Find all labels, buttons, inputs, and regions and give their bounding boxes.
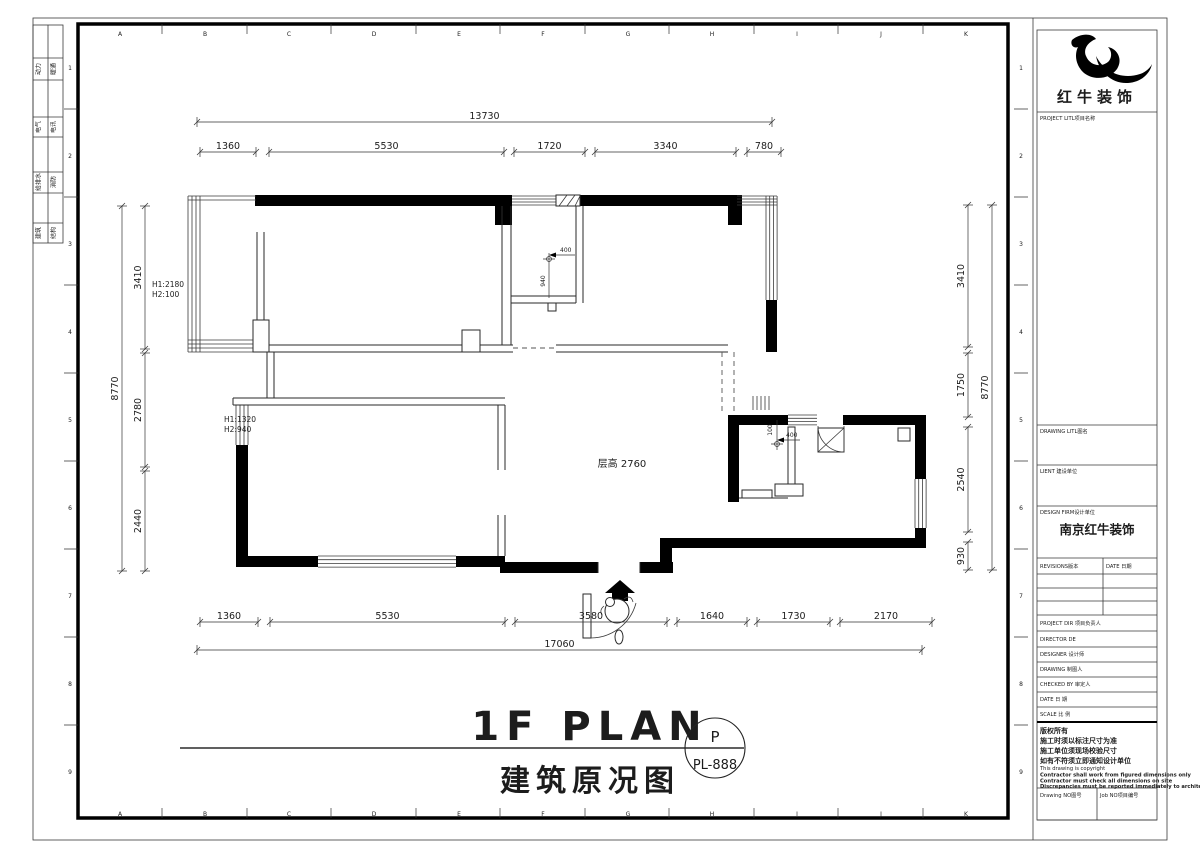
grid-number: 5 — [68, 417, 72, 424]
grid-number: 2 — [1019, 153, 1023, 160]
dim-label: 3580 — [579, 611, 603, 622]
wall-pier — [253, 320, 269, 352]
dim-label: 3340 — [653, 141, 677, 152]
dim-top-5: 780 — [744, 141, 784, 157]
interior-walls — [233, 206, 788, 573]
grid-number: 6 — [1019, 505, 1023, 512]
window-top-middle — [512, 196, 556, 205]
grid-letter: G — [626, 31, 631, 38]
copyright-line-en: This drawing is copyright — [1039, 766, 1105, 772]
grid-number: 7 — [68, 593, 72, 600]
date-col-label: DATE 日期 — [1106, 563, 1132, 570]
grid-letter: H — [710, 811, 715, 818]
dim-top-3: 1720 — [511, 141, 588, 157]
copyright-line: 施工时须以标注尺寸为准 — [1040, 736, 1117, 745]
grid-letter: C — [287, 811, 291, 818]
window1-h1-label: H1:2180 — [152, 280, 184, 289]
dim-right-1: 3410 — [956, 202, 973, 350]
dim-label: 1750 — [956, 373, 967, 397]
dim-top-overall: 13730 — [194, 111, 775, 127]
window2-h2-label: H2:940 — [224, 425, 251, 434]
director-label: DIRECTOR DE — [1040, 637, 1076, 643]
micro-dim-label: 400 — [786, 432, 798, 439]
grid-letter: F — [541, 811, 545, 818]
grid-numbers-right: 1 2 3 4 5 6 7 8 9 — [1014, 65, 1028, 776]
micro-dim-label: 400 — [560, 247, 572, 254]
dim-label: 1730 — [781, 611, 805, 622]
dim-label: 13730 — [469, 111, 499, 122]
stamp-label: 结构 — [50, 227, 58, 239]
bubble-number: PL-888 — [693, 758, 737, 773]
dim-right-2: 1750 — [956, 350, 973, 420]
grid-number: 1 — [68, 65, 72, 72]
grid-number: 4 — [68, 329, 72, 336]
title-cn: 建筑原况图 — [500, 764, 680, 799]
window-kitchen-top — [788, 415, 817, 425]
stamp-label: 消防 — [50, 176, 58, 188]
copyright-line: 如有不符须立即通知设计单位 — [1040, 756, 1131, 765]
micro-dim-label: 940 — [540, 275, 547, 287]
dim-left-overall: 8770 — [110, 203, 127, 574]
dim-label: 17060 — [544, 639, 574, 650]
grid-letter: J — [879, 811, 882, 818]
grid-letter: J — [879, 31, 882, 38]
kitchen-fixtures — [742, 426, 910, 498]
bubble-letter: P — [710, 728, 719, 746]
grid-letter: F — [541, 31, 545, 38]
removed-wall-dashed — [513, 348, 734, 415]
floor-plan-walls — [236, 195, 926, 573]
copyright-line: 版权所有 — [1040, 726, 1068, 735]
dim-left-2: 2780 — [133, 350, 150, 470]
drawing-by-label: DRAWING 制图人 — [1040, 665, 1082, 673]
grid-letter: D — [372, 811, 377, 818]
stamp-label: 动力 — [35, 63, 43, 75]
dim-label: 1360 — [216, 141, 240, 152]
grid-number: 8 — [68, 681, 72, 688]
dim-left-1: 3410 — [133, 203, 150, 352]
grid-number: 4 — [1019, 329, 1023, 336]
dim-label: 2170 — [874, 611, 898, 622]
window-right-upper — [766, 196, 777, 300]
grid-number: 8 — [1019, 681, 1023, 688]
stamp-label: 建筑 — [35, 227, 43, 239]
grid-number: 6 — [68, 505, 72, 512]
dim-label: 930 — [956, 547, 967, 565]
drawing-title: 1F PLAN 建筑原况图 P PL-888 — [180, 704, 745, 799]
window-hatched — [556, 195, 580, 206]
dim-top-1: 1360 — [197, 141, 259, 157]
grid-letter: K — [964, 31, 969, 38]
wall-pier — [462, 330, 480, 352]
stamp-label: 暖通 — [50, 63, 58, 75]
dim-bottom-5: 1730 — [754, 611, 833, 627]
signature-strip: 动力 暖通 电气 电讯 给排水 消防 建筑 结构 — [33, 25, 63, 243]
grid-letter: A — [118, 31, 123, 38]
grid-number: 9 — [68, 769, 72, 776]
stamp-label: 电讯 — [50, 121, 58, 133]
window-balcony-left — [188, 196, 200, 352]
grid-letter: B — [203, 31, 207, 38]
stamp-label: 电气 — [35, 121, 43, 133]
grid-letter: D — [372, 31, 377, 38]
grid-number: 2 — [68, 153, 72, 160]
grid-number: 3 — [68, 241, 72, 248]
dim-top-2: 5530 — [266, 141, 507, 157]
room-height-label: 层高 2760 — [598, 457, 647, 470]
grid-letter: B — [203, 811, 207, 818]
dim-right-overall: 8770 — [980, 202, 997, 573]
grid-letter: I — [796, 811, 798, 818]
dim-label: 780 — [755, 141, 773, 152]
dim-bottom-1: 1360 — [197, 611, 261, 627]
grid-letter: E — [457, 811, 461, 818]
grid-letter: H — [710, 31, 715, 38]
title-en: 1F PLAN — [471, 704, 708, 750]
grid-letter: G — [626, 811, 631, 818]
grid-letter: I — [796, 31, 798, 38]
drawing-title-label: DRAWING LITL图名 — [1040, 427, 1088, 435]
copyright-line: 施工单位须现场校验尺寸 — [1040, 746, 1117, 755]
grid-number: 3 — [1019, 241, 1023, 248]
dim-label: 8770 — [110, 376, 121, 400]
window-right-wing — [915, 479, 926, 528]
grid-numbers-left: 1 2 3 4 5 6 7 8 9 — [64, 65, 78, 776]
logo-name: 红牛装饰 — [1057, 88, 1137, 106]
copyright-line-en: Discrepancies must be reported immediate… — [1040, 784, 1200, 790]
dim-label: 3410 — [956, 264, 967, 288]
cad-sheet: A B C D E F G H I J K A B C D E F G H I … — [0, 0, 1200, 845]
stamp-label: 给排水 — [35, 173, 43, 191]
window1-h2-label: H2:100 — [152, 290, 179, 299]
window-balcony-bottom — [188, 340, 256, 352]
grid-letter: E — [457, 31, 461, 38]
dim-label: 5530 — [375, 611, 399, 622]
counter — [742, 490, 772, 498]
dim-label: 2780 — [133, 398, 144, 422]
bull-logo-icon — [1071, 35, 1152, 83]
titleblock: 红牛装饰 PROJECT LITL项目名称 DRAWING LITL图名 LIE… — [1037, 35, 1200, 820]
plan-labels: 层高 2760 H1:2180 H2:100 H1:1320 H2:940 — [152, 280, 646, 470]
dim-label: 1640 — [700, 611, 724, 622]
micro-dim-bath: 400 940 — [540, 247, 575, 298]
project-label: PROJECT LITL项目名称 — [1040, 114, 1095, 122]
designer-label: DESIGNER 设计师 — [1040, 650, 1084, 658]
design-firm-label: DESIGN FIRM设计单位 — [1040, 508, 1095, 516]
micro-dim-label: 100 — [767, 424, 774, 436]
window-bottom-left — [318, 556, 456, 567]
drawing-no-label: Drawing NO图号 — [1040, 792, 1082, 799]
dim-label: 2440 — [133, 509, 144, 533]
scale-label: SCALE 比 例 — [1040, 710, 1070, 718]
dim-label: 1360 — [217, 611, 241, 622]
dim-bottom-overall: 17060 — [194, 639, 925, 655]
job-no-label: Job NO项目编号 — [1099, 791, 1138, 799]
design-firm-name: 南京红牛装饰 — [1059, 522, 1135, 537]
dim-label: 3410 — [133, 265, 144, 289]
date-row-label: DATE 日 期 — [1040, 696, 1067, 703]
dim-label: 1720 — [537, 141, 561, 152]
dim-label: 8770 — [980, 375, 991, 399]
grid-number: 7 — [1019, 593, 1023, 600]
grid-number: 1 — [1019, 65, 1023, 72]
dim-top-4: 3340 — [592, 141, 739, 157]
grid-number: 9 — [1019, 769, 1023, 776]
dim-bottom-6: 2170 — [837, 611, 935, 627]
window2-h1-label: H1:1320 — [224, 415, 256, 424]
grid-letter: C — [287, 31, 291, 38]
project-dir-label: PROJECT DIR 项目负责人 — [1040, 619, 1101, 627]
radiator-stripes — [753, 396, 769, 410]
dim-bottom-2: 5530 — [267, 611, 508, 627]
client-label: LIENT 建设单位 — [1040, 467, 1077, 475]
window-top-right — [737, 196, 777, 205]
grid-ruler-top: A B C D E F G H I J K — [118, 24, 969, 38]
dim-label: 2540 — [956, 467, 967, 491]
dim-right-4: 930 — [956, 539, 973, 573]
dim-right-3: 2540 — [956, 424, 973, 535]
grid-number: 5 — [1019, 417, 1023, 424]
revisions-label: REVISIONS版本 — [1040, 562, 1078, 570]
checked-by-label: CHECKED BY 审定人 — [1040, 680, 1090, 688]
window-balcony-top — [188, 196, 256, 200]
dim-label: 5530 — [374, 141, 398, 152]
dim-bottom-4: 1640 — [674, 611, 750, 627]
dim-left-3: 2440 — [133, 468, 150, 574]
